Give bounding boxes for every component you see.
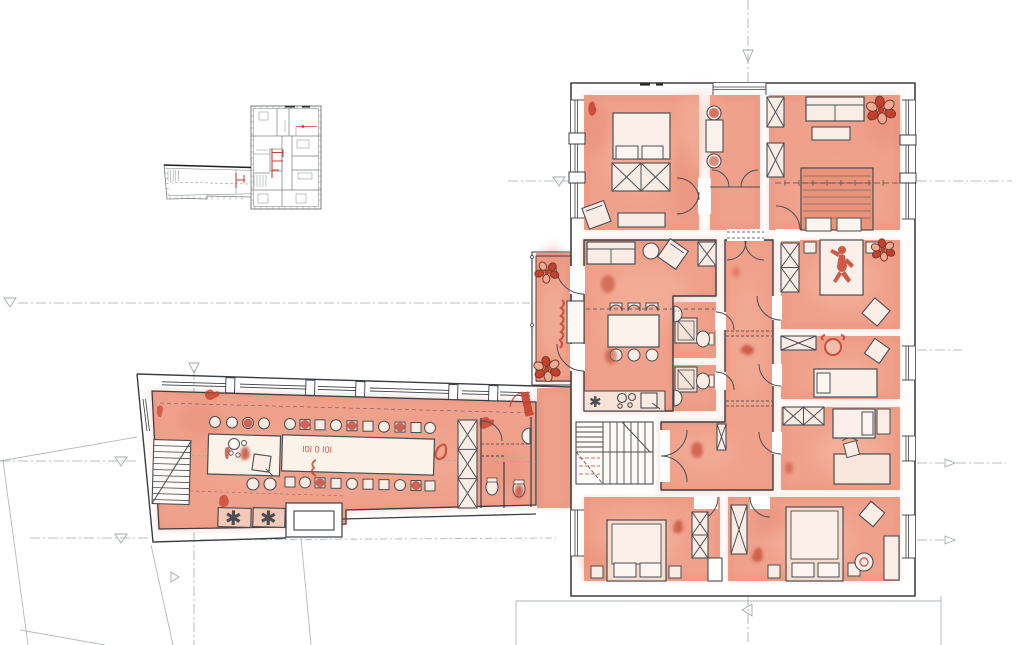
svg-text:✱: ✱ xyxy=(225,508,242,530)
svg-text:I0I 0 I0I: I0I 0 I0I xyxy=(302,444,332,455)
svg-text:✱: ✱ xyxy=(260,508,277,530)
svg-text:✱: ✱ xyxy=(589,394,602,411)
